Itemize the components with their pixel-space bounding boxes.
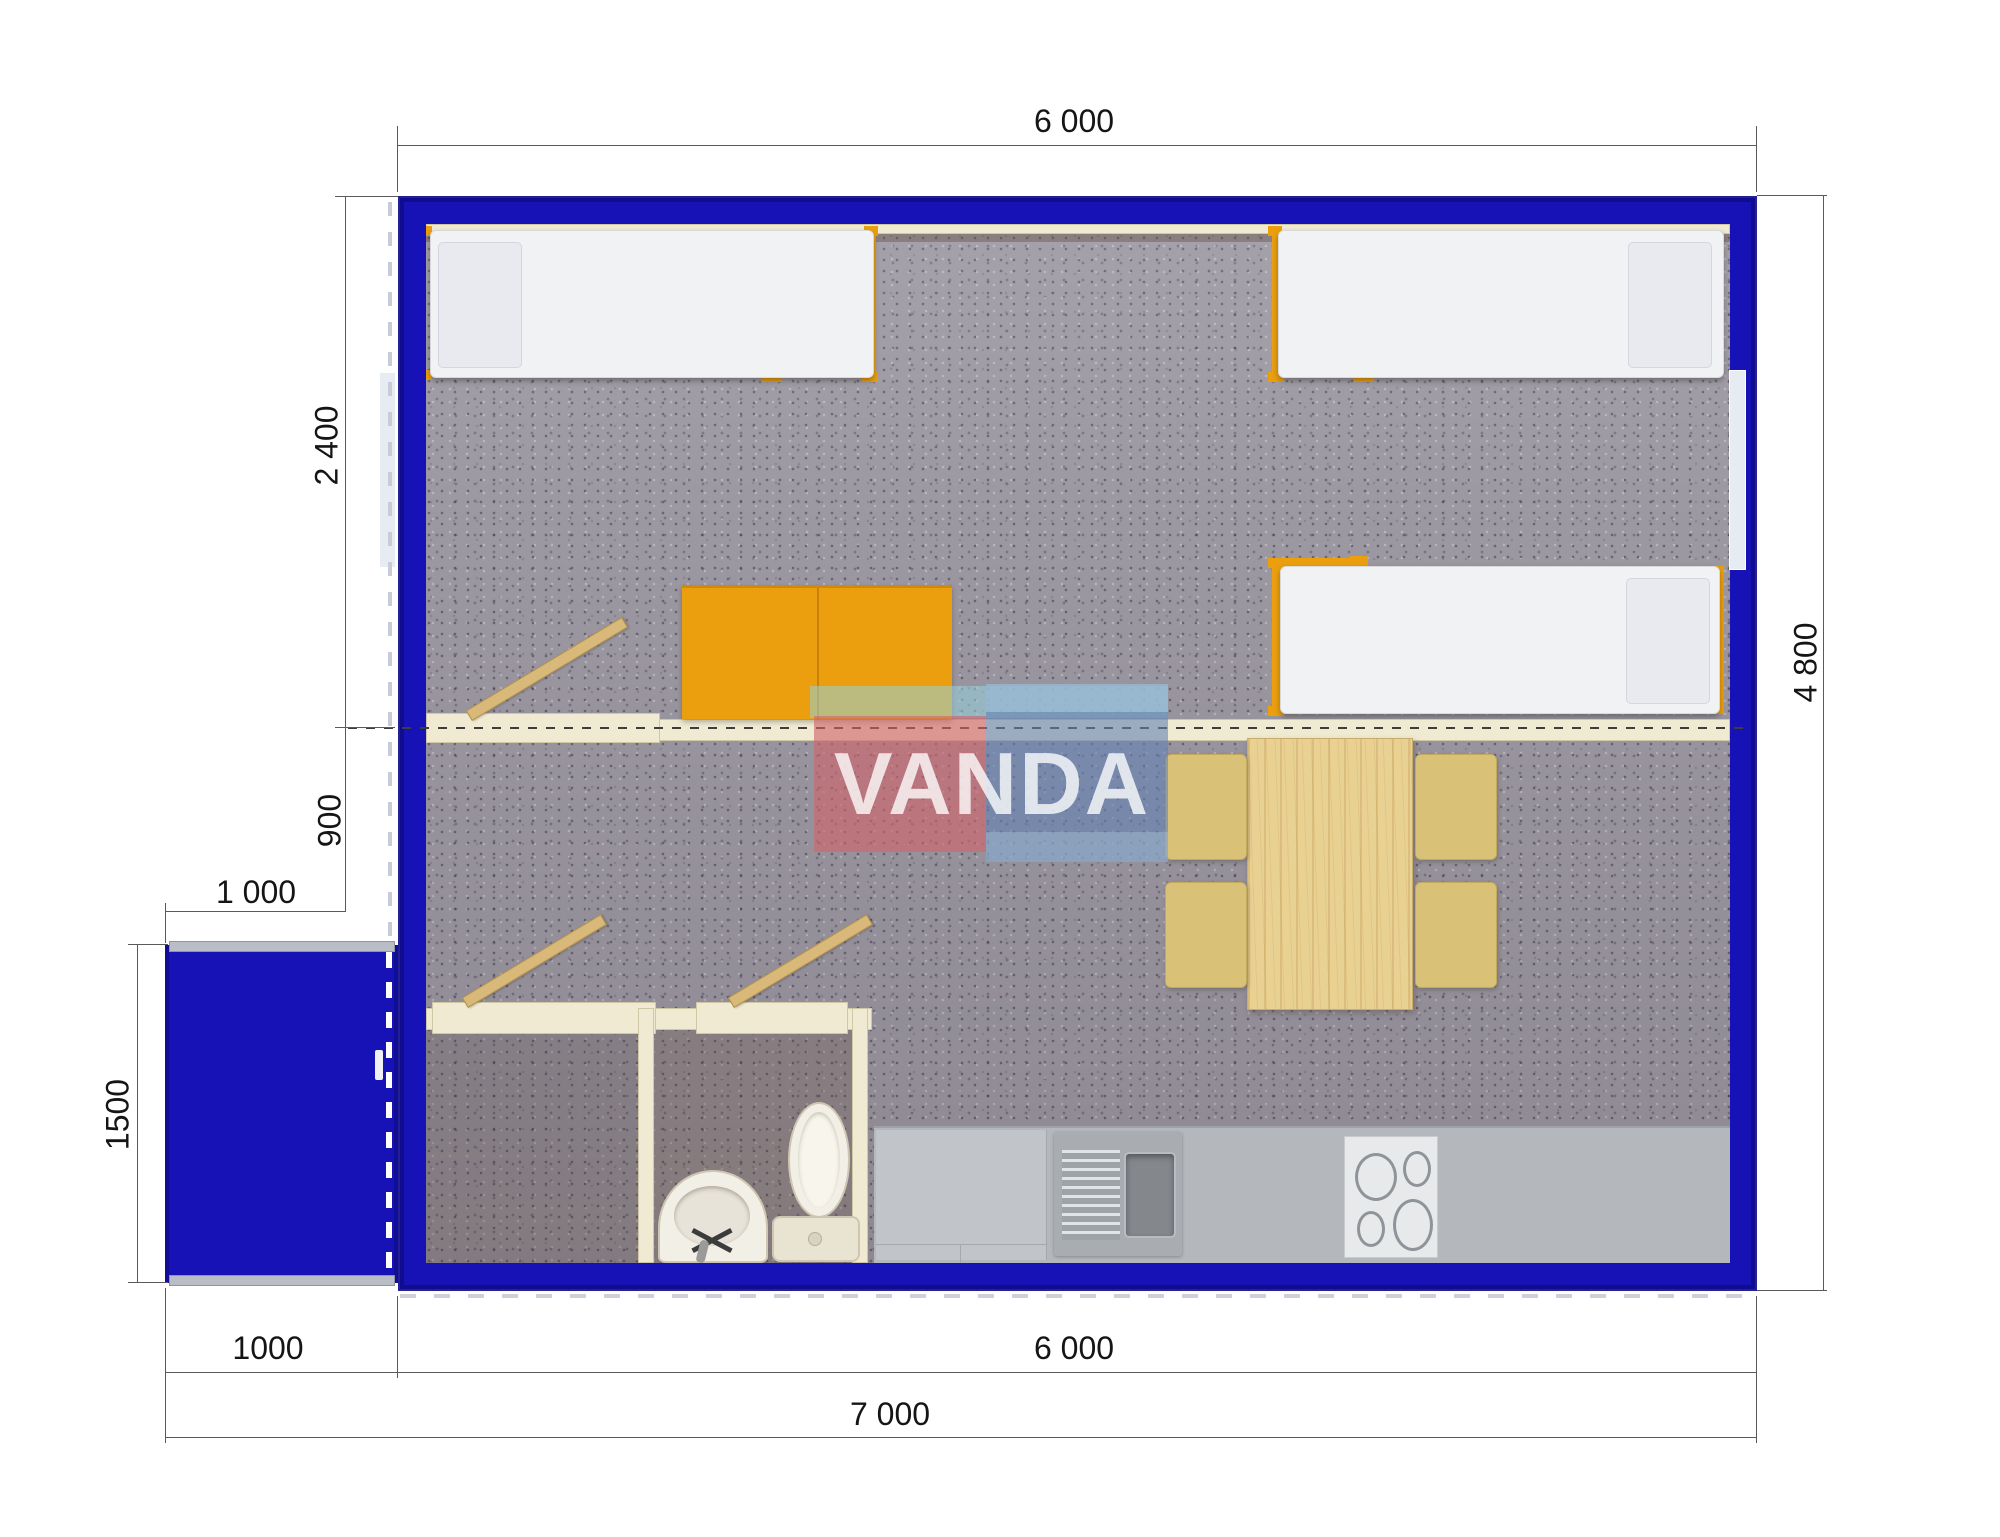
dim-porch-depth: 1500: [100, 1045, 137, 1185]
dim-ext: [397, 1296, 398, 1378]
pillow: [438, 242, 522, 368]
dim-ext: [128, 1282, 168, 1283]
porch-step: [169, 1275, 395, 1286]
chair: [1415, 754, 1497, 860]
toilet-flush-button: [808, 1232, 822, 1246]
dim-top-width: 6 000: [974, 103, 1174, 140]
bathroom-wall-lintel: [696, 1002, 848, 1034]
floor-plan-canvas: VANDA 6 000 4 800 2 400 900 1 000 1500 1…: [0, 0, 2000, 1537]
bed-frame-corner: [1268, 558, 1282, 568]
chair: [1165, 754, 1247, 860]
entrance-door-dashed: [386, 952, 392, 1278]
wc-partition-wall: [638, 1008, 654, 1263]
stove-burner: [1393, 1199, 1433, 1251]
dim-ext: [335, 727, 395, 728]
chair: [1415, 882, 1497, 988]
dim-bottom-total: 7 000: [790, 1396, 990, 1433]
entrance-porch: [165, 945, 398, 1283]
kitchen-counter-panel: [876, 1130, 1047, 1260]
window-right-icon: [1729, 370, 1746, 570]
watermark-bevel: [986, 684, 1168, 712]
kitchen-sink-basin: [1124, 1152, 1176, 1238]
stove-burner: [1357, 1211, 1385, 1247]
dim-ext: [128, 944, 168, 945]
dim-ext: [165, 903, 166, 943]
dim-line: [1823, 196, 1824, 1291]
dim-ext: [397, 126, 398, 192]
dim-ext: [1756, 1296, 1757, 1443]
dim-bedroom-depth: 2 400: [309, 376, 346, 516]
dim-line: [398, 145, 1757, 146]
pillow: [1626, 578, 1710, 704]
chair: [1165, 882, 1247, 988]
dim-ext: [1757, 1290, 1827, 1291]
stove-icon: [1344, 1136, 1438, 1258]
counter-seam: [876, 1244, 1046, 1245]
toilet-seat: [798, 1112, 840, 1208]
watermark-text: VANDA: [816, 724, 1168, 844]
drainboard: [1062, 1150, 1120, 1240]
door-handle-icon: [375, 1050, 383, 1080]
dim-bottom-porch: 1000: [168, 1330, 368, 1367]
dim-hall-depth: 900: [312, 766, 349, 876]
kitchen-sink-unit: [1054, 1132, 1182, 1256]
dim-bottom-main: 6 000: [974, 1330, 1174, 1367]
dim-ext: [335, 196, 398, 197]
dim-ext: [165, 1288, 166, 1443]
bottom-wall-dashed-outline: [400, 1294, 1756, 1298]
porch-step: [169, 941, 395, 952]
left-wall-dashed-outline: [388, 202, 392, 938]
bathroom-wall-lintel: [432, 1002, 656, 1034]
dim-ext: [1756, 126, 1757, 192]
dim-line: [165, 1372, 1757, 1373]
stove-burner: [1355, 1153, 1397, 1201]
dim-line: [137, 945, 138, 1283]
dim-line: [165, 911, 346, 912]
dim-right-height: 4 800: [1788, 593, 1825, 733]
dim-ext: [1757, 195, 1827, 196]
dim-porch-width: 1 000: [176, 874, 336, 911]
stove-burner: [1403, 1151, 1431, 1187]
dining-table: [1247, 738, 1413, 1010]
dim-line: [165, 1437, 1757, 1438]
shower-room-floor: [426, 1030, 638, 1263]
pillow: [1628, 242, 1712, 368]
counter-seam: [960, 1244, 961, 1263]
